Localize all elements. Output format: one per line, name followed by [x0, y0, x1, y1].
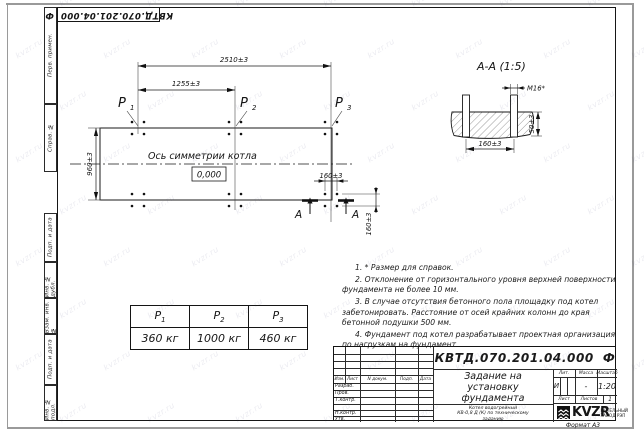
dim-bolt-h-label: 160±3	[320, 172, 343, 180]
load-table-header-p3: P3	[249, 306, 308, 328]
tb-mass-label: Масса	[575, 369, 597, 377]
load-value-p2: 1000 кг	[190, 328, 249, 350]
axis-label: Ось симметрии котла	[148, 151, 257, 162]
section-view: А-А (1:5) М16* 16	[451, 60, 545, 153]
load-leaders	[127, 111, 342, 126]
note-2: 2. Отклонение от горизонтального уровня …	[342, 275, 618, 296]
tb-product: Котел водогрейный КВ-0,8 Д (К) по технич…	[433, 406, 553, 422]
title-block: Изм. Лист N докум. Подп. Дата Разраб. Пр…	[333, 346, 616, 421]
tb-lit-value: И	[553, 377, 560, 395]
load-table-header-row: P1 P2 P3	[131, 306, 308, 328]
note-1: 1. * Размер для справок.	[342, 263, 618, 274]
tb-scale-label: Масштаб	[597, 369, 617, 377]
cut-label-left: А	[294, 209, 302, 221]
load-table-value-row: 360 кг 1000 кг 460 кг	[131, 328, 308, 350]
cut-label-right: А	[351, 209, 359, 221]
tb-lit-label: Лит.	[553, 369, 575, 377]
tb-sheets-label: Листов	[575, 395, 603, 403]
tb-mass-value: -	[575, 377, 597, 395]
extension-lines	[88, 62, 380, 222]
tb-col-izm: Изм.	[334, 375, 345, 383]
tb-row-razrab: Разраб.	[335, 383, 360, 390]
tb-sheets-value: 1	[603, 395, 617, 403]
tb-scale-value: 1:20	[597, 377, 617, 395]
dim-side-label: 960±3	[86, 152, 94, 176]
embed-depth-label: 50±3	[528, 115, 536, 134]
load-table-header-p2: P2	[190, 306, 249, 328]
thread-label: М16*	[527, 85, 546, 93]
tb-col-data: Дата	[418, 375, 433, 383]
load-value-p1: 360 кг	[131, 328, 190, 350]
drawing-sheet: КВТД.070.201.04.000 Ф Перв. примен. Спра…	[0, 0, 644, 430]
anchor-bolt-right	[511, 95, 518, 137]
dim-half-label: 1255±3	[172, 80, 200, 88]
load-table: P1 P2 P3 360 кг 1000 кг 460 кг	[130, 305, 308, 350]
load-p1: P	[118, 96, 126, 111]
load-p1-sub: 1	[130, 104, 134, 112]
load-p2: P	[240, 96, 248, 111]
tb-company-name: КОТЕЛЬНЫЙ ЗАВОД РЭП	[601, 408, 628, 418]
tb-col-list: Лист	[345, 375, 360, 383]
format-label: Формат А3	[520, 422, 644, 429]
tb-row-prov: Пров.	[335, 390, 360, 397]
load-table-header-p1: P1	[131, 306, 190, 328]
section-title: А-А (1:5)	[476, 60, 526, 73]
tb-sheet-label: Лист	[553, 395, 575, 403]
anchor-bolt-left	[463, 95, 470, 137]
dimension-arrows	[94, 64, 378, 212]
bolt-spacing-label: 160±3	[479, 140, 502, 148]
tb-row-tkontr: Т.контр.	[335, 397, 360, 404]
plan-view: 2510±3 1255±3 960±3 160±3 160±3 Ось симм…	[70, 56, 380, 236]
kvzr-logo-icon	[557, 406, 570, 419]
level-mark: 0,000	[197, 171, 221, 181]
tb-col-podp: Подп.	[395, 375, 418, 383]
dim-bolt-v-label: 160±3	[365, 213, 373, 236]
notes-block: 1. * Размер для справок. 2. Отклонение о…	[342, 263, 618, 352]
tb-doc-number: КВТД.070.201.04.000Ф	[433, 347, 617, 369]
dim-total-label: 2510±3	[220, 56, 248, 64]
load-p3: P	[335, 96, 343, 111]
tb-row-utv: Утв.	[335, 416, 360, 422]
load-value-p3: 460 кг	[249, 328, 308, 350]
tb-title: Задание на установку фундамента	[433, 371, 553, 404]
load-p2-sub: 2	[252, 104, 257, 112]
tb-col-docum: N докум.	[360, 375, 395, 383]
load-p3-sub: 3	[347, 104, 351, 112]
note-3: 3. В случае отсутствия бетонного пола пл…	[342, 297, 618, 329]
